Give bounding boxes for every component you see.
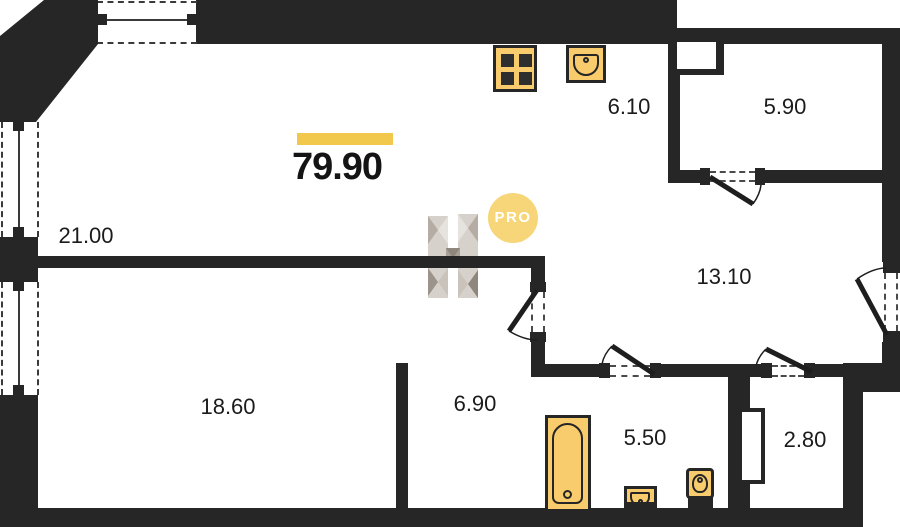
window-pane (18, 290, 20, 386)
wall-segment (0, 256, 545, 268)
door-opening (710, 171, 755, 182)
wall-segment (843, 373, 863, 527)
kitchen-sink-icon (566, 45, 606, 83)
wall-segment (0, 36, 36, 122)
wall-segment (531, 364, 603, 377)
stove-icon (493, 45, 537, 92)
wall-segment (196, 0, 677, 44)
area-label-corridor: 6.90 (454, 391, 497, 417)
bathtub-icon (545, 415, 591, 512)
wall-segment (813, 364, 863, 377)
area-label-storage: 2.80 (784, 427, 827, 453)
area-label-top-right-room: 5.90 (764, 94, 807, 120)
floor-plan: 79.90 PRO 21.00 6.10 5.90 13.10 18.60 6.… (0, 0, 900, 527)
door-opening (531, 292, 545, 332)
area-label-bedroom: 18.60 (200, 394, 255, 420)
wall-segment (668, 170, 700, 183)
door-opening (610, 365, 650, 377)
duct-shaft-opening (677, 42, 716, 69)
area-label-living-room: 21.00 (58, 223, 113, 249)
wall-segment (0, 508, 863, 527)
area-label-hallway: 13.10 (696, 264, 751, 290)
toilet-base (688, 497, 713, 510)
door-opening (772, 365, 804, 377)
wall-segment (765, 170, 900, 183)
pro-badge: PRO (488, 193, 538, 243)
area-label-kitchen: 6.10 (608, 94, 651, 120)
window (97, 1, 197, 44)
area-label-bathroom: 5.50 (624, 425, 667, 451)
toilet-icon (686, 468, 714, 499)
door-opening (884, 273, 898, 331)
window (1, 122, 39, 237)
wash-basin-base (626, 502, 654, 510)
window (1, 282, 39, 395)
wall-segment (882, 28, 900, 262)
door-leaf (857, 279, 887, 335)
total-area-accent-bar (297, 133, 393, 145)
wall-segment (0, 395, 38, 527)
total-area-value: 79.90 (278, 146, 396, 189)
window-pane (18, 130, 20, 228)
wall-segment (396, 363, 408, 508)
storage-niche (738, 408, 765, 484)
window-pane (104, 19, 190, 21)
